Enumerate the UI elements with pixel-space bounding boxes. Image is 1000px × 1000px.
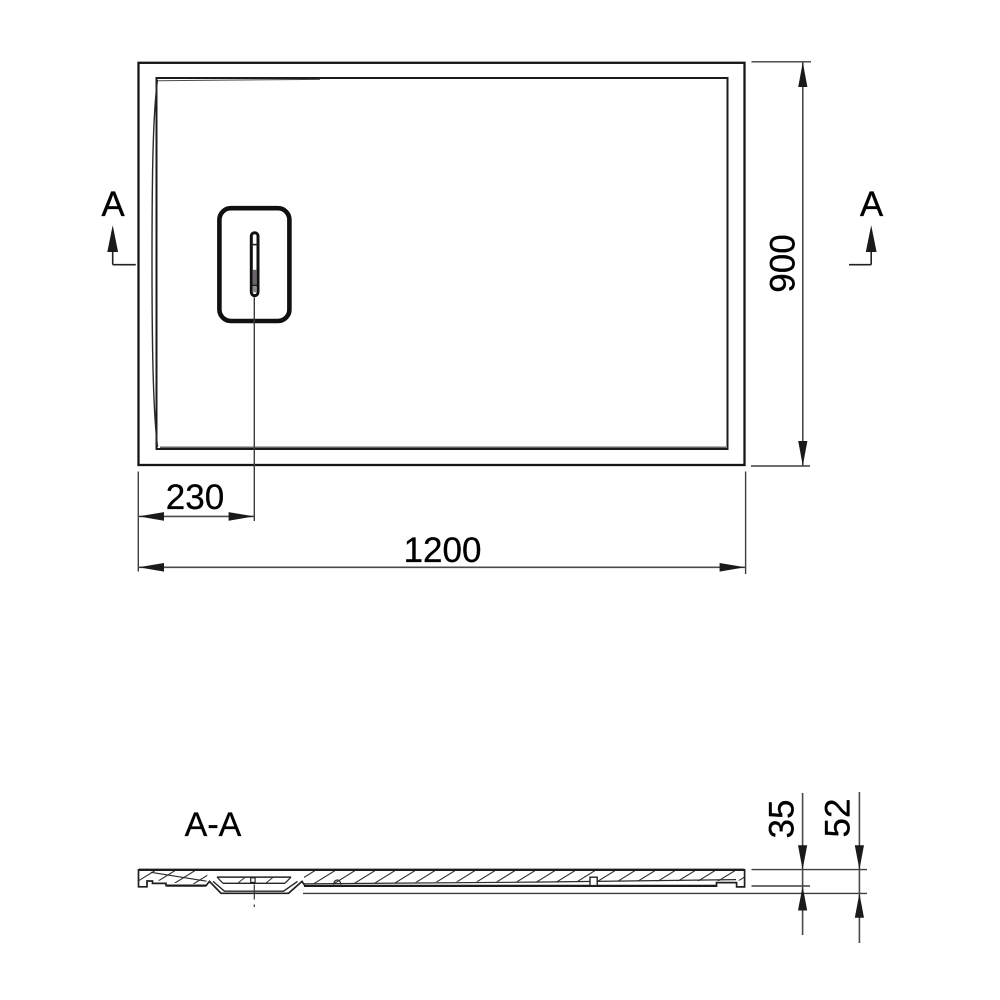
svg-text:A: A: [860, 185, 884, 224]
svg-text:230: 230: [166, 478, 224, 517]
svg-text:35: 35: [763, 800, 802, 839]
svg-text:A-A: A-A: [185, 806, 242, 844]
svg-text:52: 52: [819, 799, 858, 838]
svg-text:900: 900: [764, 234, 803, 292]
svg-text:A: A: [101, 185, 125, 224]
svg-text:1200: 1200: [404, 531, 482, 570]
